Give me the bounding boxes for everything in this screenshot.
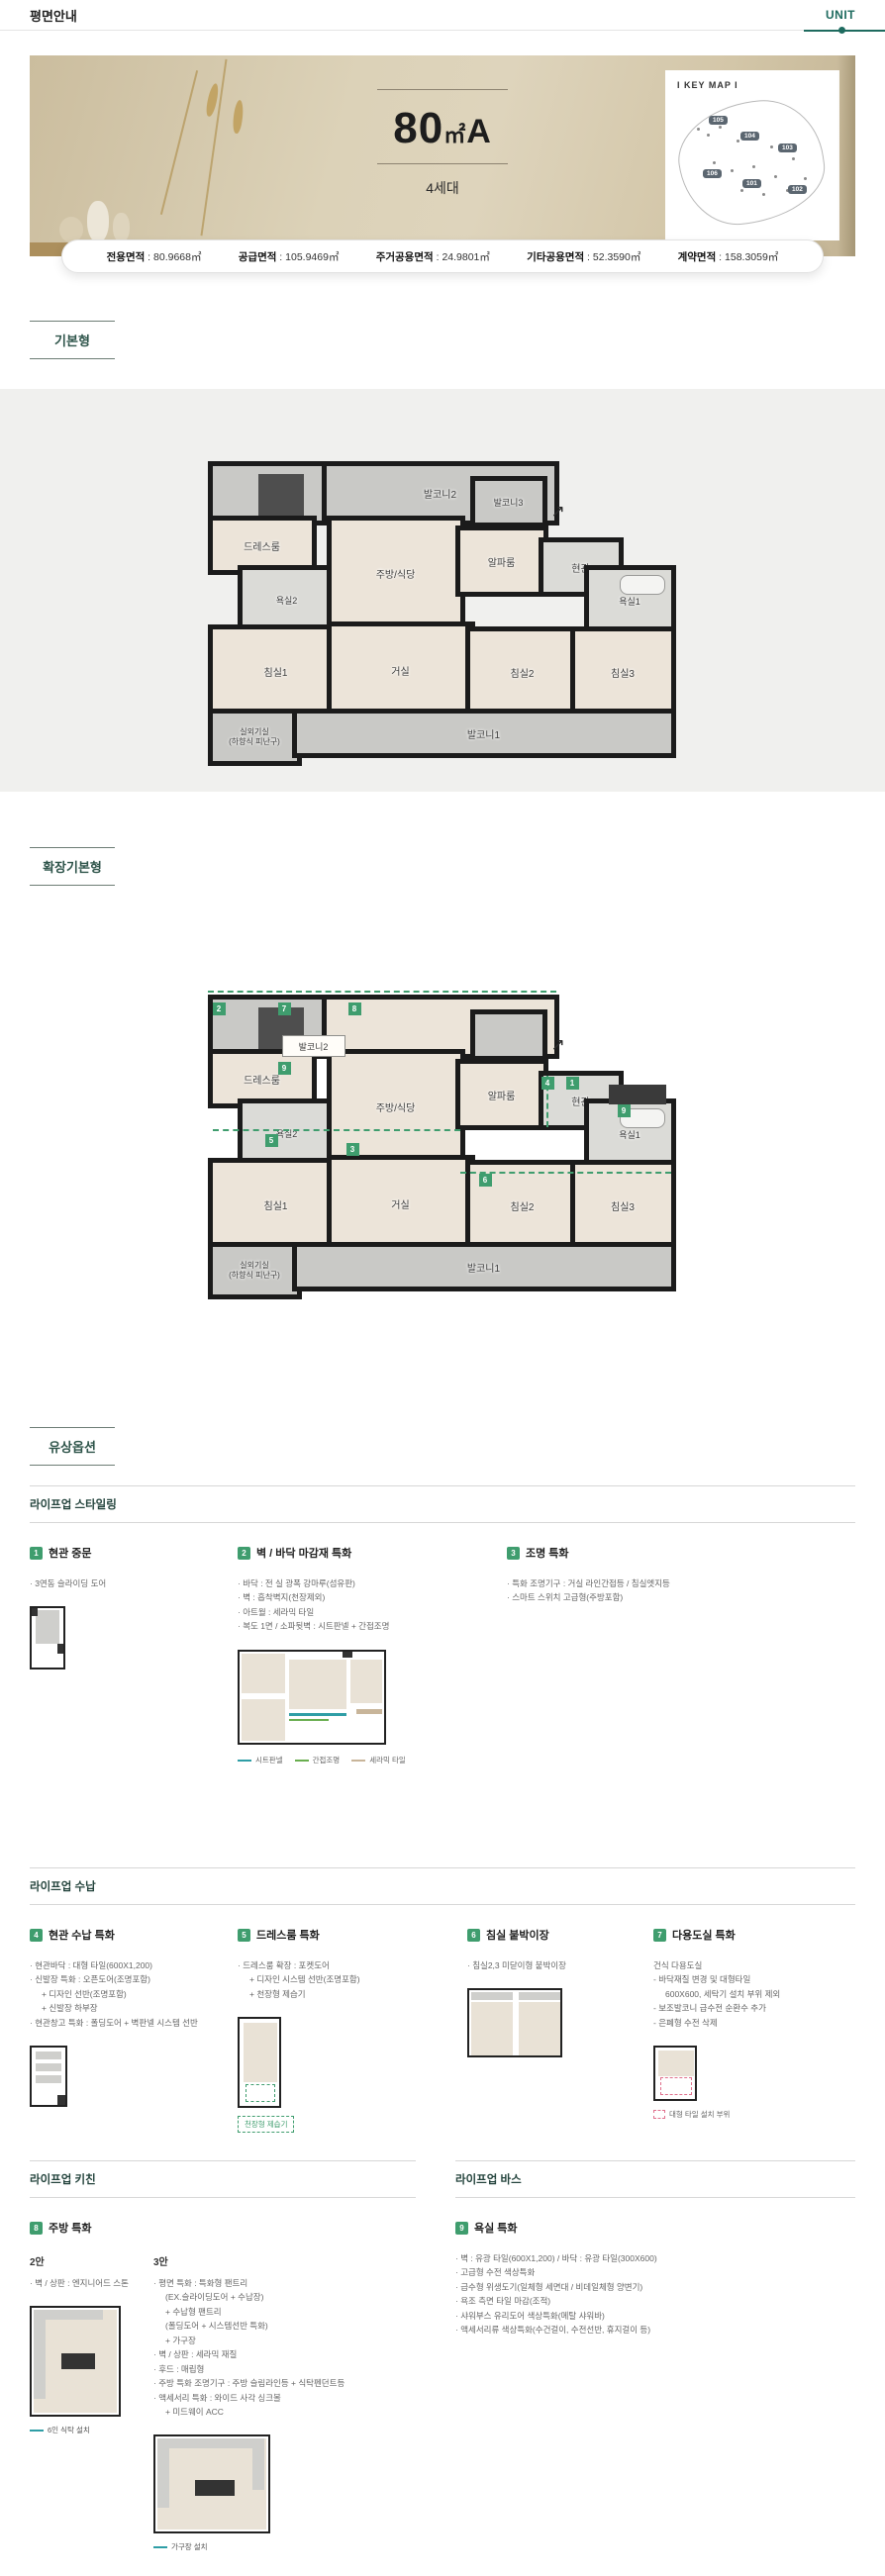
mini-plan-part <box>350 1660 382 1703</box>
mini-plan-utility <box>653 2046 697 2101</box>
unit-type-name: 80㎡A <box>314 104 571 153</box>
floor-plan-basic: 발코니2 발코니3 드레스룸 욕실2 주방/식당 알파룸 현관 욕실1 침실1 … <box>213 466 673 765</box>
option-bullet: - 보조발코니 급수전 순환수 추가 <box>653 2001 855 2015</box>
mini-plan-part <box>32 1608 38 1616</box>
area-label: 주거공용면적 <box>376 251 434 263</box>
option-builtin-closet: 6침실 붙박이장 · 침실2,3 미닫이형 붙박이장 <box>467 1927 653 2160</box>
option-bullet: - 바닥재질 변경 및 대형타일 <box>653 1972 855 1986</box>
room-label: 발코니3 <box>494 496 524 509</box>
site-outline <box>671 92 832 232</box>
key-map-card: I KEY MAP I 105 104 103 106 101 102 <box>665 70 839 240</box>
room-label: 알파룸 <box>488 1088 516 1102</box>
option-bullet: · 액세서리 특화 : 와이드 사각 싱크볼 <box>153 2391 416 2405</box>
mini-plan-closet-strip <box>471 1992 513 2000</box>
room-label: 침실1 <box>264 1197 288 1212</box>
mini-plan-dressroom <box>238 2017 281 2108</box>
bottom-spacer <box>0 2552 885 2576</box>
key-map-site: 105 104 103 106 101 102 <box>677 98 826 225</box>
mini-plan-entry-door <box>30 1606 65 1670</box>
room-living: 거실 <box>332 1160 470 1247</box>
divider <box>377 163 508 164</box>
entrance-arrow-icon: ↗ <box>551 502 565 522</box>
group-lifeup-bath: 라이프업 바스 9욕실 특화 · 벽 : 유광 타일(600X1,200) / … <box>455 2160 855 2552</box>
mini-plan-part <box>242 1699 285 1741</box>
option-badge: 8 <box>348 1002 361 1015</box>
option-bullet: · 고급형 수전 색상특화 <box>455 2265 855 2279</box>
area-value: 105.9469㎡ <box>285 251 339 263</box>
room-label: 드레스룸 <box>244 1072 280 1087</box>
room-label: 욕실1 <box>619 595 640 608</box>
option-bullet: · 벽 / 상판 : 세라믹 재질 <box>153 2347 416 2361</box>
mini-plan-part <box>471 2002 513 2055</box>
option-bullet: + 미드웨이 ACC <box>153 2405 416 2419</box>
legend-label: 대형 타일 설치 부위 <box>669 2109 730 2120</box>
legend-item: 간접조명 <box>295 1755 341 1765</box>
option-entry-storage: 4현관 수납 특화 · 현관바닥 : 대형 타일(600X1,200) · 신발… <box>30 1927 238 2160</box>
room-label: 드레스룸 <box>244 538 280 553</box>
option-number-badge: 7 <box>653 1929 666 1942</box>
entrance-arrow-icon: ↗ <box>551 1035 565 1055</box>
option-badge: 3 <box>346 1143 359 1156</box>
option-bullet: · 3연동 슬라이딩 도어 <box>30 1576 238 1590</box>
option-bullet: + 수납형 팬트리 <box>153 2305 416 2319</box>
basic-plan-band: 발코니2 발코니3 드레스룸 욕실2 주방/식당 알파룸 현관 욕실1 침실1 … <box>0 389 885 792</box>
unit-type-letter: A <box>466 113 492 150</box>
area-item: 계약면적 : 158.3059㎡ <box>678 249 779 264</box>
legend-label: 시트판넬 <box>255 1756 283 1765</box>
option-bullet: · 아트월 : 세라믹 타일 <box>238 1605 507 1619</box>
option-bullet: · 주방 특화 조명기구 : 주방 슬림라인등 + 식탁펜던트등 <box>153 2376 416 2390</box>
option-title: 주방 특화 <box>49 2220 92 2236</box>
option-badge: 5 <box>265 1134 278 1147</box>
room-bed3: 침실3 <box>575 631 671 714</box>
option-wall-floor-finish: 2벽 / 바닥 마감재 특화 · 바닥 : 전 실 광폭 강마루(섬유판) · … <box>238 1545 507 1867</box>
bathtub <box>620 575 665 595</box>
building-dots <box>697 128 700 131</box>
room-label: 발코니1 <box>467 726 500 741</box>
option-number-badge: 1 <box>30 1547 43 1560</box>
building-chip: 103 <box>778 143 797 152</box>
option-kitchen: 8주방 특화 2안 · 벽 / 상판 : 엔지니어드 스톤 <box>30 2198 416 2552</box>
room-living: 거실 <box>332 626 470 714</box>
mini-plan-entry-storage <box>30 2046 67 2107</box>
kitchen-plan3-column: 3안 · 평면 특화 : 특화형 팬트리 (EX.슬라이딩도어 + 수납장) +… <box>153 2236 416 2552</box>
room-label: 침실2 <box>511 665 535 680</box>
option-bullet: · 벽 : 유광 타일(600X1,200) / 바닥 : 유광 타일(300X… <box>455 2251 855 2265</box>
building-chip: 106 <box>703 169 722 178</box>
finish-legend: 시트판넬 간접조명 세라믹 타일 <box>238 1755 507 1765</box>
area-label: 공급면적 <box>239 251 277 263</box>
option-dressroom: 5드레스룸 특화 · 드레스룸 확장 : 포켓도어 + 디자인 시스템 선반(조… <box>238 1927 467 2160</box>
room-bath1: 욕실1 <box>589 570 671 631</box>
kitchen-plan3-caption: 가구장 설치 <box>153 2541 416 2552</box>
unit-size-unit: ㎡ <box>443 123 466 147</box>
elevator-core <box>258 474 304 518</box>
mini-plan-counter <box>157 2438 252 2448</box>
building-chip: 101 <box>742 179 761 188</box>
mini-plan-part <box>244 2023 277 2082</box>
room-outdoor-unit: 실외기실(하향식 피난구) <box>213 1247 297 1294</box>
option-title: 침실 붙박이장 <box>486 1927 549 1943</box>
option-bullet: + 가구장 <box>153 2334 416 2347</box>
option-bullet: · 액세서리류 색상특화(수건걸이, 수전선반, 휴지걸이 등) <box>455 2323 855 2337</box>
page: 평면안내 UNIT 80㎡A 4세대 I KEY MAP I 105 <box>0 0 885 2576</box>
room-label: 주방/식당 <box>376 1099 416 1114</box>
mini-plan-finish <box>238 1650 386 1745</box>
area-summary-bar: 전용면적 : 80.9668㎡ 공급면적 : 105.9469㎡ 주거공용면적 … <box>61 239 824 273</box>
kitchen-bath-row: 라이프업 키친 8주방 특화 2안 · 벽 / 상판 : 엔지니어드 스톤 <box>0 2160 885 2552</box>
extension-dashed-line <box>213 1129 460 1131</box>
hero-banner: 80㎡A 4세대 I KEY MAP I 105 104 103 106 101… <box>30 55 855 256</box>
room-bath2: 욕실2 <box>243 570 332 629</box>
option-title: 다용도실 특화 <box>672 1927 736 1943</box>
legend-label: 간접조명 <box>313 1756 341 1765</box>
mini-plan-kitchen3 <box>153 2434 270 2533</box>
mini-plan-part <box>36 1610 59 1644</box>
option-bullet: · 신발장 특화 : 오픈도어(조명포함) <box>30 1972 238 1986</box>
storage-block <box>609 1085 666 1104</box>
area-item: 공급면적 : 105.9469㎡ <box>239 249 340 264</box>
option-bullet: · 벽 : 흡착벽지(천장제외) <box>238 1590 507 1604</box>
option-bullet: · 후드 : 매립형 <box>153 2362 416 2376</box>
option-bullet: + 신발장 하부장 <box>30 2001 238 2015</box>
option-bullet: · 현관창고 특화 : 폴딩도어 + 벽판넬 시스템 선반 <box>30 2016 238 2030</box>
legend-swatch <box>30 2430 44 2432</box>
room-label: 욕실1 <box>619 1128 640 1141</box>
room-label: 실외기실 <box>240 1261 268 1270</box>
room-label: 욕실2 <box>276 594 298 607</box>
mini-plan-closet <box>467 1988 562 2057</box>
room-bath2: 욕실2 <box>243 1103 332 1163</box>
option-number-badge: 9 <box>455 2222 468 2235</box>
unit-size-number: 80 <box>393 104 443 152</box>
page-title: 평면안내 <box>30 6 77 25</box>
extended-plan-area: 발코니2 드레스룸 욕실2 주방/식당 알파룸 현관 욕실1 침실1 거실 침실… <box>0 1000 885 1310</box>
option-number-badge: 8 <box>30 2222 43 2235</box>
building-chip: 104 <box>740 132 759 141</box>
option-bullet: · 스마트 스위치 고급형(주방포함) <box>507 1590 855 1604</box>
option-bullet: · 욕조 측면 타일 마감(조적) <box>455 2294 855 2308</box>
mini-plan-part <box>36 2063 61 2071</box>
legend-swatch <box>351 1760 365 1762</box>
section-label-options: 유상옵션 <box>30 1427 115 1466</box>
mini-plan-tile-zone <box>660 2077 692 2095</box>
kitchen-plan3-label: 3안 <box>153 2253 416 2268</box>
room-outdoor-unit: 실외기실(하향식 피난구) <box>213 714 297 761</box>
mini-plan-counter <box>34 2310 103 2320</box>
area-item: 전용면적 : 80.9668㎡ <box>107 249 202 264</box>
legend-label: 세라믹 타일 <box>369 1756 406 1765</box>
group-lifeup-styling: 라이프업 스타일링 1현관 중문 · 3연동 슬라이딩 도어 2벽 / 바닥 마… <box>30 1485 855 1867</box>
vase-decoration <box>87 201 109 242</box>
option-bullet: · 벽 / 상판 : 엔지니어드 스톤 <box>30 2276 153 2290</box>
kitchen-plan2-label: 2안 <box>30 2253 153 2268</box>
room-alpha: 알파룸 <box>460 1064 543 1125</box>
option-bullet: + 천장형 제습기 <box>238 1987 467 2001</box>
room-sublabel: (하향식 피난구) <box>229 1271 280 1280</box>
area-value: 24.9801㎡ <box>442 251 489 263</box>
room-bed1: 침실1 <box>213 1163 340 1247</box>
section-label-basic: 기본형 <box>30 321 115 359</box>
room-balcony3: 발코니3 <box>475 481 542 523</box>
legend-swatch <box>653 2110 665 2119</box>
room-balcony1: 발코니1 <box>297 714 671 753</box>
area-item: 주거공용면적 : 24.9801㎡ <box>376 249 490 264</box>
section-label-extended: 확장기본형 <box>30 847 115 886</box>
tab-unit[interactable]: UNIT <box>826 8 855 22</box>
area-value: 80.9668㎡ <box>153 251 201 263</box>
wheat-decoration <box>160 70 198 215</box>
option-bullet: · 현관바닥 : 대형 타일(600X1,200) <box>30 1958 238 1972</box>
option-number-badge: 2 <box>238 1547 250 1560</box>
room-label: 거실 <box>391 1196 409 1211</box>
mini-plan-table <box>61 2353 95 2369</box>
kitchen-plan2-column: 2안 · 벽 / 상판 : 엔지니어드 스톤 6인 식탁 설치 <box>30 2236 153 2552</box>
option-bullet: · 평면 특화 : 특화형 팬트리 <box>153 2276 416 2290</box>
area-label: 기타공용면적 <box>527 251 584 263</box>
area-label: 전용면적 <box>107 251 146 263</box>
extension-dashed-line <box>208 991 556 993</box>
mini-plan-sheet-panel-mark <box>289 1713 346 1716</box>
mini-plan-indirect-light-mark <box>289 1719 329 1721</box>
building-chip: 102 <box>788 185 807 194</box>
option-bullet: · 특화 조명기구 : 거실 라인간접등 / 침실엣지등 <box>507 1576 855 1590</box>
room-balcony1: 발코니1 <box>297 1247 671 1287</box>
mini-plan-part <box>57 2095 65 2105</box>
dressroom-caption: 천장형 제습기 <box>238 2116 294 2133</box>
room-label: 침실1 <box>264 664 288 679</box>
room-balcony2-tag: 발코니2 <box>282 1035 345 1057</box>
option-title: 벽 / 바닥 마감재 특화 <box>256 1545 351 1561</box>
mini-plan-part <box>36 2075 61 2083</box>
mini-plan-part <box>36 2051 61 2059</box>
unit-type-block: 80㎡A 4세대 <box>314 89 571 198</box>
option-number-badge: 5 <box>238 1929 250 1942</box>
room-utility-core <box>213 466 327 521</box>
group-lifeup-storage: 라이프업 수납 4현관 수납 특화 · 현관바닥 : 대형 타일(600X1,2… <box>30 1867 855 2160</box>
option-badge: 7 <box>278 1002 291 1015</box>
option-bullet: (폴딩도어 + 시스템선반 특화) <box>153 2319 416 2333</box>
room-label: 발코니2 <box>299 1040 329 1053</box>
room-sublabel: (하향식 피난구) <box>229 737 280 746</box>
option-bullet: · 샤워부스 유리도어 색상특화(메탈 샤워바) <box>455 2309 855 2323</box>
option-number-badge: 4 <box>30 1929 43 1942</box>
room-label: 실외기실 <box>240 727 268 736</box>
option-title: 현관 중문 <box>49 1545 92 1561</box>
legend-swatch <box>238 1760 251 1762</box>
group-heading: 라이프업 수납 <box>30 1868 855 1904</box>
mini-plan-part <box>242 1654 285 1693</box>
wheat-decoration <box>232 100 245 135</box>
building-chip: 105 <box>709 116 728 125</box>
option-number-badge: 3 <box>507 1547 520 1560</box>
option-bullet: · 침실2,3 미닫이형 붙박이장 <box>467 1958 653 1972</box>
room-label: 알파룸 <box>488 554 516 569</box>
option-title: 드레스룸 특화 <box>256 1927 320 1943</box>
option-bullet: 건식 다용도실 <box>653 1958 855 1972</box>
room-label: 현관 <box>571 1094 589 1108</box>
mini-plan-part <box>658 2051 694 2076</box>
kitchen-plan2-caption: 6인 식탁 설치 <box>30 2425 153 2435</box>
room-label: 침실3 <box>611 1198 635 1213</box>
mini-plan-part <box>289 1660 346 1709</box>
room-bed1: 침실1 <box>213 629 340 714</box>
caption-label: 가구장 설치 <box>171 2542 208 2551</box>
option-number-badge: 6 <box>467 1929 480 1942</box>
option-bullet: 600X600, 세탁기 설치 부위 제외 <box>653 1987 855 2001</box>
room-label: 발코니1 <box>467 1260 500 1275</box>
room-alpha: 알파룸 <box>460 530 543 592</box>
option-bullet: · 복도 1면 / 소파뒷벽 : 시트판넬 + 간접조명 <box>238 1619 507 1633</box>
option-title: 조명 특화 <box>526 1545 569 1561</box>
option-badge: 4 <box>541 1077 554 1090</box>
mini-plan-dehumidifier-zone <box>246 2084 275 2102</box>
option-badge: 6 <box>479 1174 492 1187</box>
legend-item: 세라믹 타일 <box>351 1755 406 1765</box>
top-bar: 평면안내 UNIT <box>0 0 885 31</box>
mini-plan-counter <box>157 2438 169 2508</box>
group-heading: 라이프업 바스 <box>455 2161 855 2197</box>
group-heading: 라이프업 키친 <box>30 2161 416 2197</box>
unit-tab-dot <box>838 27 845 34</box>
room-label: 침실2 <box>511 1198 535 1213</box>
mini-plan-part <box>519 2002 560 2055</box>
legend-item: 시트판넬 <box>238 1755 283 1765</box>
mini-plan-ceramic-mark <box>356 1709 382 1714</box>
mini-plan-table <box>195 2480 235 2496</box>
room-dressroom: 드레스룸 <box>213 521 312 570</box>
room-label: 발코니2 <box>424 486 456 501</box>
option-bullet: + 디자인 선반(조명포함) <box>30 1987 238 2001</box>
divider <box>377 89 508 90</box>
room-dressroom: 드레스룸 <box>213 1054 312 1103</box>
option-badge: 2 <box>213 1002 226 1015</box>
option-bullet: · 바닥 : 전 실 광폭 강마루(섬유판) <box>238 1576 507 1590</box>
option-badge: 9 <box>278 1062 291 1075</box>
group-heading: 라이프업 스타일링 <box>30 1486 855 1522</box>
legend-swatch <box>153 2546 167 2548</box>
option-title: 욕실 특화 <box>474 2220 518 2236</box>
mini-plan-pantry <box>252 2438 264 2490</box>
room-label: 침실3 <box>611 665 635 680</box>
room-bed2: 침실2 <box>470 631 575 714</box>
room-label: 거실 <box>391 663 409 678</box>
caption-label: 6인 식탁 설치 <box>48 2426 90 2434</box>
area-value: 52.3590㎡ <box>593 251 640 263</box>
mini-plan-part <box>57 1644 63 1654</box>
mini-plan-kitchen2 <box>30 2306 121 2417</box>
floor-plan-extended: 발코니2 드레스룸 욕실2 주방/식당 알파룸 현관 욕실1 침실1 거실 침실… <box>213 1000 673 1298</box>
option-bullet: + 디자인 시스템 선반(조명포함) <box>238 1972 467 1986</box>
option-bullet: (EX.슬라이딩도어 + 수납장) <box>153 2290 416 2304</box>
group-lifeup-kitchen: 라이프업 키친 8주방 특화 2안 · 벽 / 상판 : 엔지니어드 스톤 <box>30 2160 416 2552</box>
option-badge: 1 <box>566 1077 579 1090</box>
key-map-title: I KEY MAP I <box>677 80 828 90</box>
mini-plan-counter <box>34 2310 46 2399</box>
option-badge: 9 <box>618 1104 631 1117</box>
vase-decoration <box>113 213 130 242</box>
mini-plan-closet-strip <box>519 1992 560 2000</box>
option-bullet: · 드레스룸 확장 : 포켓도어 <box>238 1958 467 1972</box>
room-label: 주방/식당 <box>376 566 416 581</box>
area-label: 계약면적 <box>678 251 717 263</box>
household-count: 4세대 <box>314 178 571 198</box>
option-lighting: 3조명 특화 · 특화 조명기구 : 거실 라인간접등 / 침실엣지등 · 스마… <box>507 1545 855 1867</box>
mini-plan-part <box>343 1652 352 1658</box>
room-kitchen: 주방/식당 <box>332 521 460 626</box>
option-bath: 9욕실 특화 · 벽 : 유광 타일(600X1,200) / 바닥 : 유광 … <box>455 2198 855 2337</box>
room-bed3: 침실3 <box>575 1165 671 1247</box>
option-utility-room: 7다용도실 특화 건식 다용도실 - 바닥재질 변경 및 대형타일 600X60… <box>653 1927 855 2160</box>
area-value: 158.3059㎡ <box>725 251 778 263</box>
option-title: 현관 수납 특화 <box>49 1927 115 1943</box>
area-item: 기타공용면적 : 52.3590㎡ <box>527 249 640 264</box>
legend-swatch <box>295 1760 309 1762</box>
room-label: 현관 <box>571 560 589 575</box>
option-bullet: · 급수형 위생도기(일체형 세면대 / 비데일체형 양변기) <box>455 2280 855 2294</box>
room-balcony3 <box>475 1014 542 1056</box>
option-entry-door: 1현관 중문 · 3연동 슬라이딩 도어 <box>30 1545 238 1867</box>
option-bullet: - 은폐형 수전 삭제 <box>653 2016 855 2030</box>
utility-legend: 대형 타일 설치 부위 <box>653 2109 855 2120</box>
